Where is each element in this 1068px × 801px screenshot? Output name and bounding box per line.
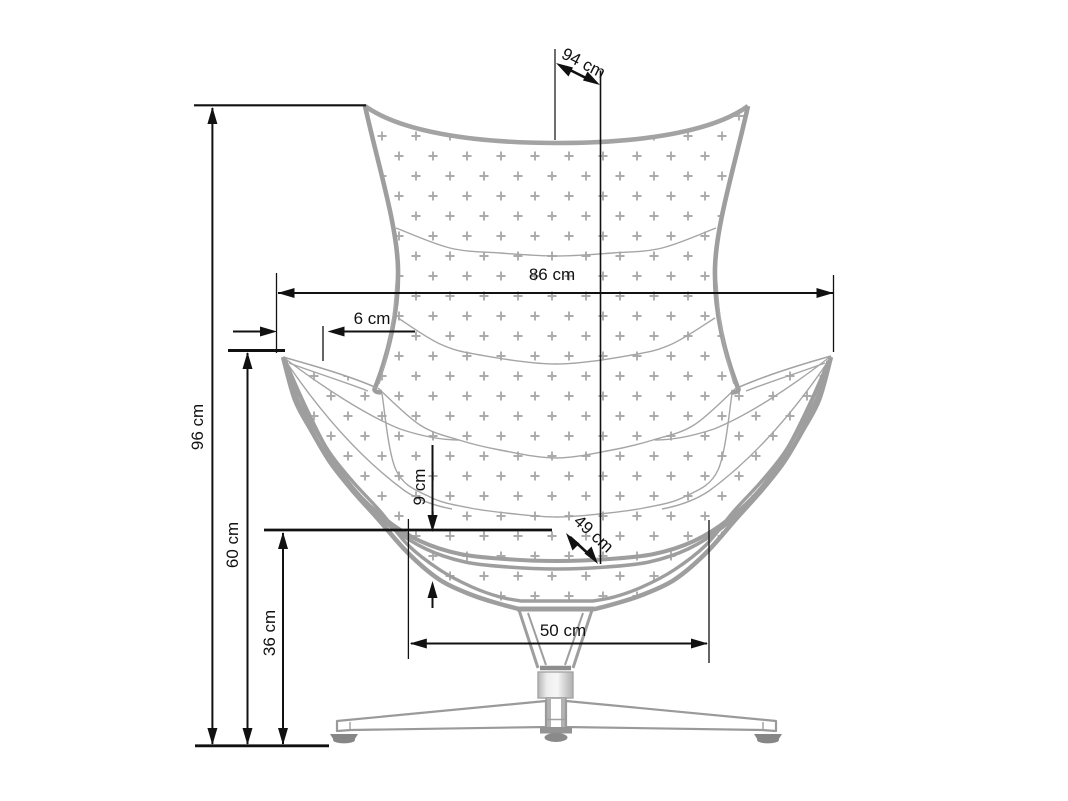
svg-text:50 cm: 50 cm bbox=[540, 621, 586, 640]
svg-text:6 cm: 6 cm bbox=[354, 309, 391, 328]
svg-text:60 cm: 60 cm bbox=[223, 522, 242, 568]
svg-text:86 cm: 86 cm bbox=[529, 265, 575, 284]
svg-text:36 cm: 36 cm bbox=[260, 610, 279, 656]
svg-text:9 cm: 9 cm bbox=[410, 469, 429, 506]
svg-text:96 cm: 96 cm bbox=[188, 404, 207, 450]
